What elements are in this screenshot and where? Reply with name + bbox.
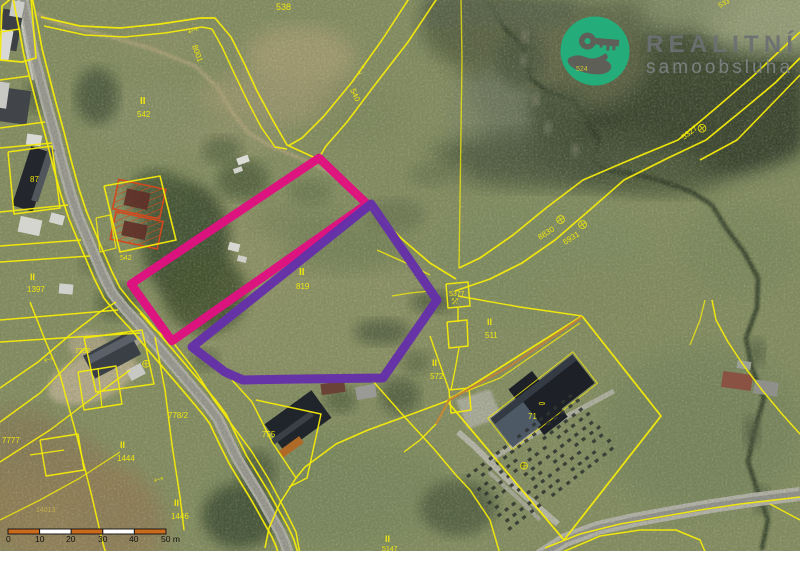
svg-text:71: 71 [528, 412, 537, 421]
svg-text:87: 87 [30, 175, 39, 184]
svg-text:II: II [385, 534, 390, 544]
svg-text:7292: 7292 [75, 348, 91, 355]
svg-text:755: 755 [262, 430, 276, 439]
svg-text:II: II [30, 272, 35, 282]
svg-text:1397: 1397 [27, 285, 45, 294]
svg-text:1444: 1444 [117, 454, 135, 463]
svg-text:50 m: 50 m [161, 534, 180, 544]
svg-text:II: II [174, 498, 179, 508]
svg-text:30: 30 [98, 534, 108, 544]
svg-text:⚰: ⚰ [538, 399, 546, 409]
svg-text:II: II [487, 317, 492, 327]
svg-text:1446: 1446 [171, 512, 189, 521]
svg-text:0: 0 [6, 534, 11, 544]
svg-text:II: II [432, 358, 437, 368]
svg-text:II: II [120, 440, 125, 450]
svg-text:524: 524 [576, 66, 588, 73]
svg-text:40: 40 [129, 534, 139, 544]
svg-text:20: 20 [66, 534, 76, 544]
svg-text:⤱: ⤱ [450, 297, 458, 306]
svg-text:10: 10 [35, 534, 45, 544]
svg-text:511: 511 [485, 331, 498, 340]
svg-text:7777: 7777 [2, 436, 20, 445]
svg-text:538: 538 [276, 2, 291, 12]
svg-text:542: 542 [137, 110, 151, 119]
svg-text:II: II [299, 267, 305, 278]
svg-text:14013: 14013 [36, 507, 56, 514]
svg-text:572: 572 [430, 372, 444, 381]
svg-text:samoobsluha: samoobsluha [646, 57, 793, 78]
svg-text:778/2: 778/2 [168, 411, 189, 420]
svg-text:542: 542 [120, 255, 132, 262]
svg-text:⨁: ⨁ [520, 461, 528, 470]
svg-text:819: 819 [296, 282, 310, 291]
svg-text:⨁: ⨁ [142, 359, 150, 368]
svg-text:REALITNÍ: REALITNÍ [646, 30, 798, 58]
svg-text:II: II [140, 96, 146, 107]
